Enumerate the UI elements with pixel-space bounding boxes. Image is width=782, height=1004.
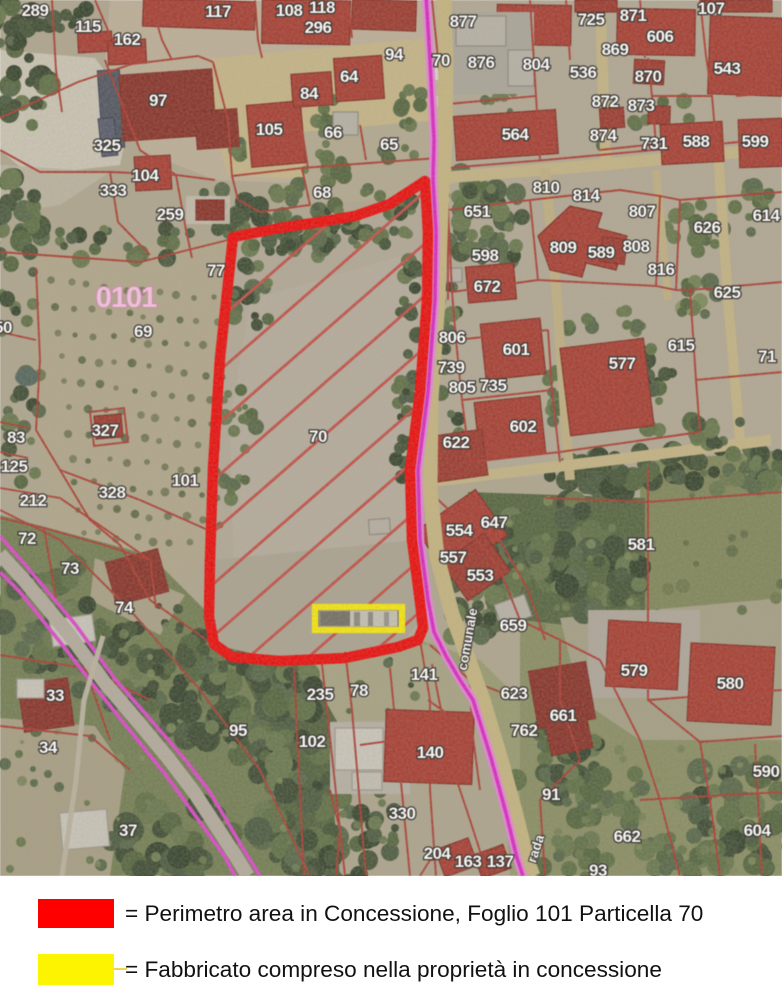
svg-text:327: 327 [92,421,119,440]
svg-text:874: 874 [590,126,618,145]
svg-text:50: 50 [0,318,12,337]
svg-text:328: 328 [99,483,126,502]
svg-text:804: 804 [523,55,551,74]
svg-text:816: 816 [648,260,675,279]
svg-text:579: 579 [621,661,648,680]
svg-text:873: 873 [628,96,655,115]
svg-text:83: 83 [7,428,25,447]
svg-text:871: 871 [620,6,647,25]
svg-text:877: 877 [450,12,477,31]
svg-text:125: 125 [1,457,28,476]
svg-text:588: 588 [683,132,710,151]
svg-text:807: 807 [629,202,656,221]
svg-text:333: 333 [100,181,127,200]
svg-text:137: 137 [487,852,514,871]
svg-text:661: 661 [550,706,577,725]
svg-text:599: 599 [742,132,769,151]
svg-text:805: 805 [449,378,476,397]
svg-text:289: 289 [22,1,49,20]
svg-text:70: 70 [432,51,450,70]
svg-text:601: 601 [503,340,530,359]
svg-text:108: 108 [276,1,303,20]
svg-text:162: 162 [114,30,141,49]
svg-text:= Fabbricato compreso nella pr: = Fabbricato compreso nella proprietà in… [125,957,662,982]
svg-text:212: 212 [20,491,47,510]
svg-text:735: 735 [480,376,507,395]
svg-text:659: 659 [500,616,527,635]
svg-text:543: 543 [714,59,741,78]
svg-text:590: 590 [753,762,780,781]
svg-text:876: 876 [468,53,495,72]
svg-text:69: 69 [134,322,152,341]
svg-text:809: 809 [550,238,577,257]
svg-text:0101: 0101 [96,282,157,314]
svg-text:602: 602 [510,417,537,436]
svg-text:739: 739 [438,358,465,377]
svg-text:622: 622 [443,433,470,452]
svg-text:814: 814 [573,186,601,205]
svg-text:589: 589 [588,243,615,262]
svg-text:662: 662 [614,827,641,846]
svg-text:94: 94 [385,45,404,64]
svg-text:330: 330 [389,804,416,823]
svg-text:581: 581 [628,535,655,554]
svg-text:104: 104 [132,166,160,185]
svg-text:626: 626 [694,218,721,237]
svg-text:725: 725 [578,10,605,29]
svg-text:71: 71 [758,347,776,366]
svg-text:97: 97 [149,91,167,110]
svg-text:259: 259 [157,205,184,224]
svg-text:66: 66 [324,123,342,142]
svg-text:672: 672 [474,277,501,296]
svg-text:625: 625 [714,283,741,302]
svg-text:731: 731 [641,134,668,153]
svg-text:73: 73 [61,559,79,578]
svg-text:869: 869 [602,40,629,59]
svg-text:118: 118 [309,0,335,17]
svg-text:614: 614 [753,206,781,225]
svg-text:623: 623 [501,684,528,703]
svg-text:37: 37 [119,821,137,840]
svg-text:296: 296 [305,18,332,37]
svg-text:102: 102 [299,732,326,751]
svg-text:557: 557 [440,548,467,567]
svg-text:163: 163 [455,852,482,871]
svg-text:70: 70 [309,427,327,446]
svg-text:105: 105 [256,120,283,139]
svg-text:604: 604 [744,821,772,840]
svg-text:95: 95 [229,721,247,740]
svg-text:72: 72 [18,529,36,548]
svg-text:615: 615 [668,336,695,355]
svg-text:553: 553 [467,566,494,585]
svg-text:68: 68 [313,183,331,202]
svg-text:872: 872 [592,92,619,111]
svg-text:536: 536 [570,63,597,82]
svg-text:91: 91 [542,785,560,804]
svg-text:580: 580 [717,674,744,693]
svg-text:117: 117 [205,2,231,21]
svg-text:651: 651 [464,202,491,221]
svg-text:78: 78 [350,681,368,700]
svg-text:325: 325 [94,136,121,155]
svg-text:577: 577 [609,354,636,373]
svg-text:= Perimetro area in Concession: = Perimetro area in Concessione, Foglio … [125,901,703,926]
svg-text:235: 235 [307,685,334,704]
svg-text:141: 141 [411,665,438,684]
svg-text:554: 554 [446,521,474,540]
svg-text:598: 598 [472,246,499,265]
svg-text:647: 647 [481,513,508,532]
svg-text:808: 808 [623,237,650,256]
svg-text:33: 33 [46,686,64,705]
svg-text:810: 810 [533,178,560,197]
svg-text:140: 140 [417,743,444,762]
svg-text:870: 870 [635,67,662,86]
svg-text:84: 84 [300,84,319,103]
svg-text:107: 107 [698,0,725,18]
svg-text:606: 606 [647,27,674,46]
svg-text:762: 762 [511,721,538,740]
svg-text:115: 115 [75,17,101,36]
svg-text:564: 564 [502,125,530,144]
svg-text:101: 101 [172,471,199,490]
svg-text:204: 204 [424,844,452,863]
svg-text:806: 806 [439,328,466,347]
svg-text:34: 34 [39,738,58,757]
svg-text:74: 74 [115,598,134,617]
svg-text:77: 77 [207,261,225,280]
svg-text:64: 64 [340,67,359,86]
svg-text:65: 65 [380,135,398,154]
